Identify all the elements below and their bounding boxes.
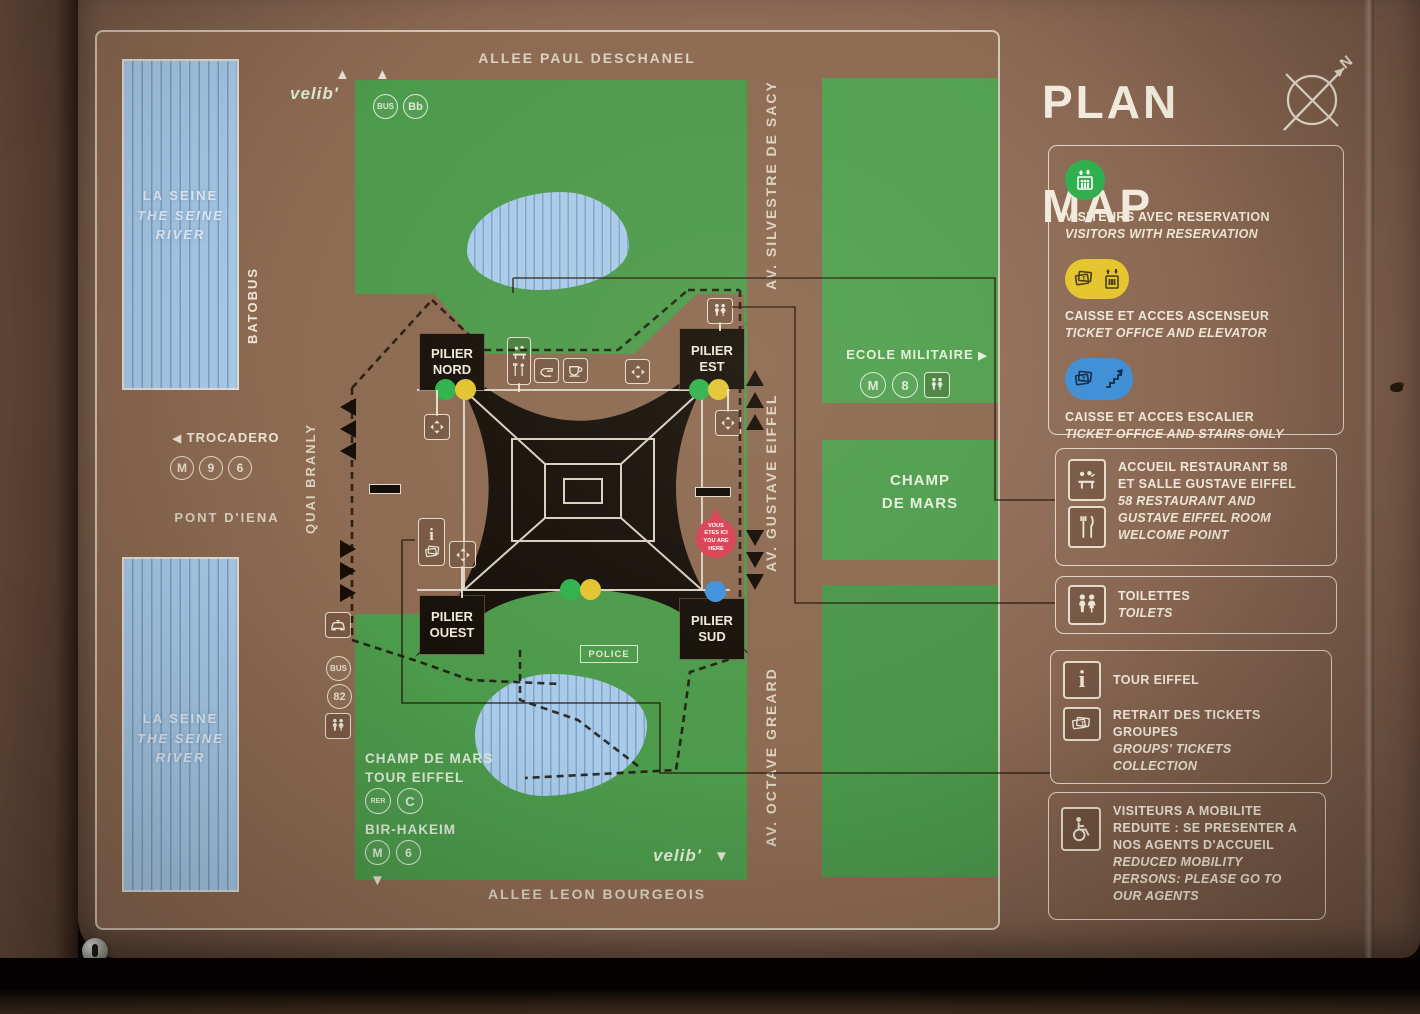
river-label-en1: THE SEINE [137,731,224,746]
access-dot-reservation [560,579,581,600]
legend-mobility-text: VISITEURS A MOBILITE REDUITE : SE PRESEN… [1113,803,1297,909]
park-entrance-arrow-icon: ▲ [335,66,350,83]
legend-toilets: TOILETTES TOILETS [1055,576,1337,634]
legend-mobility-en: REDUCED MOBILITY PERSONS: PLEASE GO TO O… [1113,854,1297,905]
access-dot-elevator [708,379,729,400]
restaurant-icon [1068,506,1106,548]
river-label: LA SEINE THE SEINE RIVER [124,186,237,245]
ecole-militaire-badges: M 8 [860,372,950,398]
pillar-south: PILIER SUD [680,599,744,659]
icon-stem [461,566,463,598]
metro-line-icon: M [365,840,390,865]
access-dot-elevator [455,379,476,400]
bus-stop-north-badges: BUS Bb [373,94,428,119]
legend-stairs-icon: T [1065,358,1133,400]
bus-line-82-icon: 82 [327,684,352,709]
metro-line-icon: 8 [892,372,918,398]
river-label-fr: LA SEINE [143,711,218,726]
legend-mobility-fr: VISITEURS A MOBILITE REDUITE : SE PRESEN… [1113,803,1297,854]
av-silvestre-de-sacy-label: AV. SILVESTRE DE SACY [763,85,779,290]
river-label: LA SEINE THE SEINE RIVER [124,709,237,768]
legend-toilets-en: TOILETS [1118,605,1190,622]
elevator-icon [449,541,476,568]
legend-elevator-icon: T [1065,259,1129,299]
metro-line-icon: M [170,456,194,480]
arrow-right-icon: ▶ [978,350,987,362]
rer-badges: RER C [365,788,423,814]
ground-shadow-band [0,958,1420,1014]
bir-hakeim-label: BIR-HAKEIM [365,822,456,837]
photo-scene: LA SEINE THE SEINE RIVER LA SEINE THE SE… [0,0,1420,1014]
group-tickets-icon: T [1063,707,1101,741]
toilets-icon [707,298,733,324]
access-dot-reservation [689,379,710,400]
legend-groups-fr: RETRAIT DES TICKETS GROUPES [1113,707,1319,741]
ecole-militaire-label: ECOLE MILITAIRE [846,347,973,362]
west-entrance-bar [369,484,401,494]
trocadero-direction: ◀ TROCADERO [141,430,311,445]
av-octave-greard-label: AV. OCTAVE GREARD [763,649,779,847]
seine-river-south: LA SEINE THE SEINE RIVER [122,557,239,892]
legend-restaurant-fr: ACCUEIL RESTAURANT 58 ET SALLE GUSTAVE E… [1118,459,1296,493]
info-point-icon: i [418,518,445,566]
icon-stem [727,389,729,412]
legend-restaurant-icons [1068,459,1106,555]
elevator-icon [715,410,741,436]
park-exit-arrow-icon: ▼ [370,872,385,889]
elevator-icon [424,414,450,440]
rer-line-c-icon: C [397,788,423,814]
legend-reservation-en: VISITORS WITH RESERVATION [1065,226,1327,243]
park-exit-arrow-icon: ▼ [714,848,729,865]
hand-service-icon [534,358,559,383]
ecole-militaire-direction: ECOLE MILITAIRE ▶ [832,347,1000,362]
info-glyph: i [429,526,434,544]
legend-toilets-fr: TOILETTES [1118,588,1190,605]
rer-station-line1: CHAMP DE MARS [365,751,493,766]
svg-text:T: T [1082,277,1086,283]
info-glyph: i [1079,667,1086,694]
green-block-southeast [822,585,1000,877]
legend-restaurant: ACCUEIL RESTAURANT 58 ET SALLE GUSTAVE E… [1055,448,1337,566]
legend-stairs-en: TICKET OFFICE AND STAIRS ONLY [1065,426,1327,443]
title-line1: PLAN [1042,76,1179,128]
legend-stairs-fr: CAISSE ET ACCES ESCALIER [1065,409,1327,426]
bir-hakeim-badges: M 6 [365,840,421,865]
info-icon: i [1063,661,1101,699]
access-dot-reservation [435,379,456,400]
pillar-west: PILIER OUEST [420,596,484,654]
wheelchair-icon [1061,807,1101,851]
park-entrance-arrow-icon: ▲ [375,66,390,83]
police-post-label: POLICE [580,645,638,663]
av-gustave-eiffel-label: AV. GUSTAVE EIFFEL [763,384,779,572]
legend-restaurant-en: 58 RESTAURANT AND GUSTAVE EIFFEL ROOM WE… [1118,493,1296,544]
arrow-left-icon: ◀ [173,433,182,445]
svg-text:T: T [1082,377,1086,383]
legend-reservation-fr: VISITEURS AVEC RESERVATION [1065,209,1327,226]
elevator-icon [625,359,650,384]
legend-access: VISITEURS AVEC RESERVATION VISITORS WITH… [1048,145,1344,435]
bus-line-icon: BUS [373,94,398,119]
allee-leon-bourgeois-label: ALLEE LEON BOURGEOIS [387,886,807,902]
rer-icon: RER [365,788,391,814]
legend-info-groups: i TOUR EIFFEL T RETRAIT DES TICKETS GROU… [1050,650,1332,784]
buffet-restaurant-icon [507,337,531,385]
legend-elevator-fr: CAISSE ET ACCES ASCENSEUR [1065,308,1327,325]
rer-station-line2: TOUR EIFFEL [365,770,464,785]
you-are-here-text: VOUS ETES ICI YOU ARE HERE [696,518,736,558]
access-dot-stairs [705,581,726,602]
you-are-here-marker: VOUS ETES ICI YOU ARE HERE [696,508,736,560]
allee-paul-deschanel-label: ALLEE PAUL DESCHANEL [417,50,757,66]
rer-station-label: CHAMP DE MARS TOUR EIFFEL [365,750,493,788]
quai-branly-label: QUAI BRANLY [303,419,318,534]
welcome-desk-icon [1068,459,1106,501]
cafe-icon [563,358,588,383]
metro-line-icon: 9 [199,456,223,480]
ticket-glyph [424,545,440,559]
river-label-en1: THE SEINE [137,208,224,223]
icon-stem [436,390,438,416]
river-label-en2: RIVER [156,750,206,765]
river-label-fr: LA SEINE [143,188,218,203]
adjacent-panel [0,0,78,972]
seine-river-north: LA SEINE THE SEINE RIVER [122,59,239,390]
toilets-icon [325,713,351,739]
fly-speck [1390,383,1403,392]
batobus-stop-label: BATOBUS [245,236,260,344]
trocadero-label: TROCADERO [187,430,280,445]
metro-line-icon: 6 [396,840,421,865]
legend-tour-eiffel-label: TOUR EIFFEL [1113,672,1199,689]
river-label-en2: RIVER [156,227,206,242]
champ-de-mars-area-label: CHAMP DE MARS [865,470,975,515]
map-board: LA SEINE THE SEINE RIVER LA SEINE THE SE… [95,30,1000,930]
east-entrance-bar [695,487,731,497]
legend-elevator-en: TICKET OFFICE AND ELEVATOR [1065,325,1327,342]
metro-line-icon: 6 [228,456,252,480]
taxi-icon [325,612,351,638]
metro-line-icon: M [860,372,886,398]
legend-toilets-text: TOILETTES TOILETS [1118,588,1190,622]
bus-line-icon: Bb [403,94,428,119]
access-dot-elevator [580,579,601,600]
legend-reservation-icon [1065,160,1105,200]
legend-mobility: VISITEURS A MOBILITE REDUITE : SE PRESEN… [1048,792,1326,920]
velib-station-south: velib' [653,846,702,866]
panel-edge-highlight [1364,0,1374,958]
pont-d-iena-label: PONT D'IENA [137,510,317,525]
velib-station-north: velib' [290,84,339,104]
legend-groups-en: GROUPS' TICKETS COLLECTION [1113,741,1319,775]
bus-icon: BUS [326,656,351,681]
toilets-icon [1068,585,1106,625]
trocadero-metro-badges: M 9 6 [170,456,252,480]
toilets-icon [924,372,950,398]
map-sign-panel: LA SEINE THE SEINE RIVER LA SEINE THE SE… [78,0,1420,958]
legend-restaurant-text: ACCUEIL RESTAURANT 58 ET SALLE GUSTAVE E… [1118,459,1296,555]
